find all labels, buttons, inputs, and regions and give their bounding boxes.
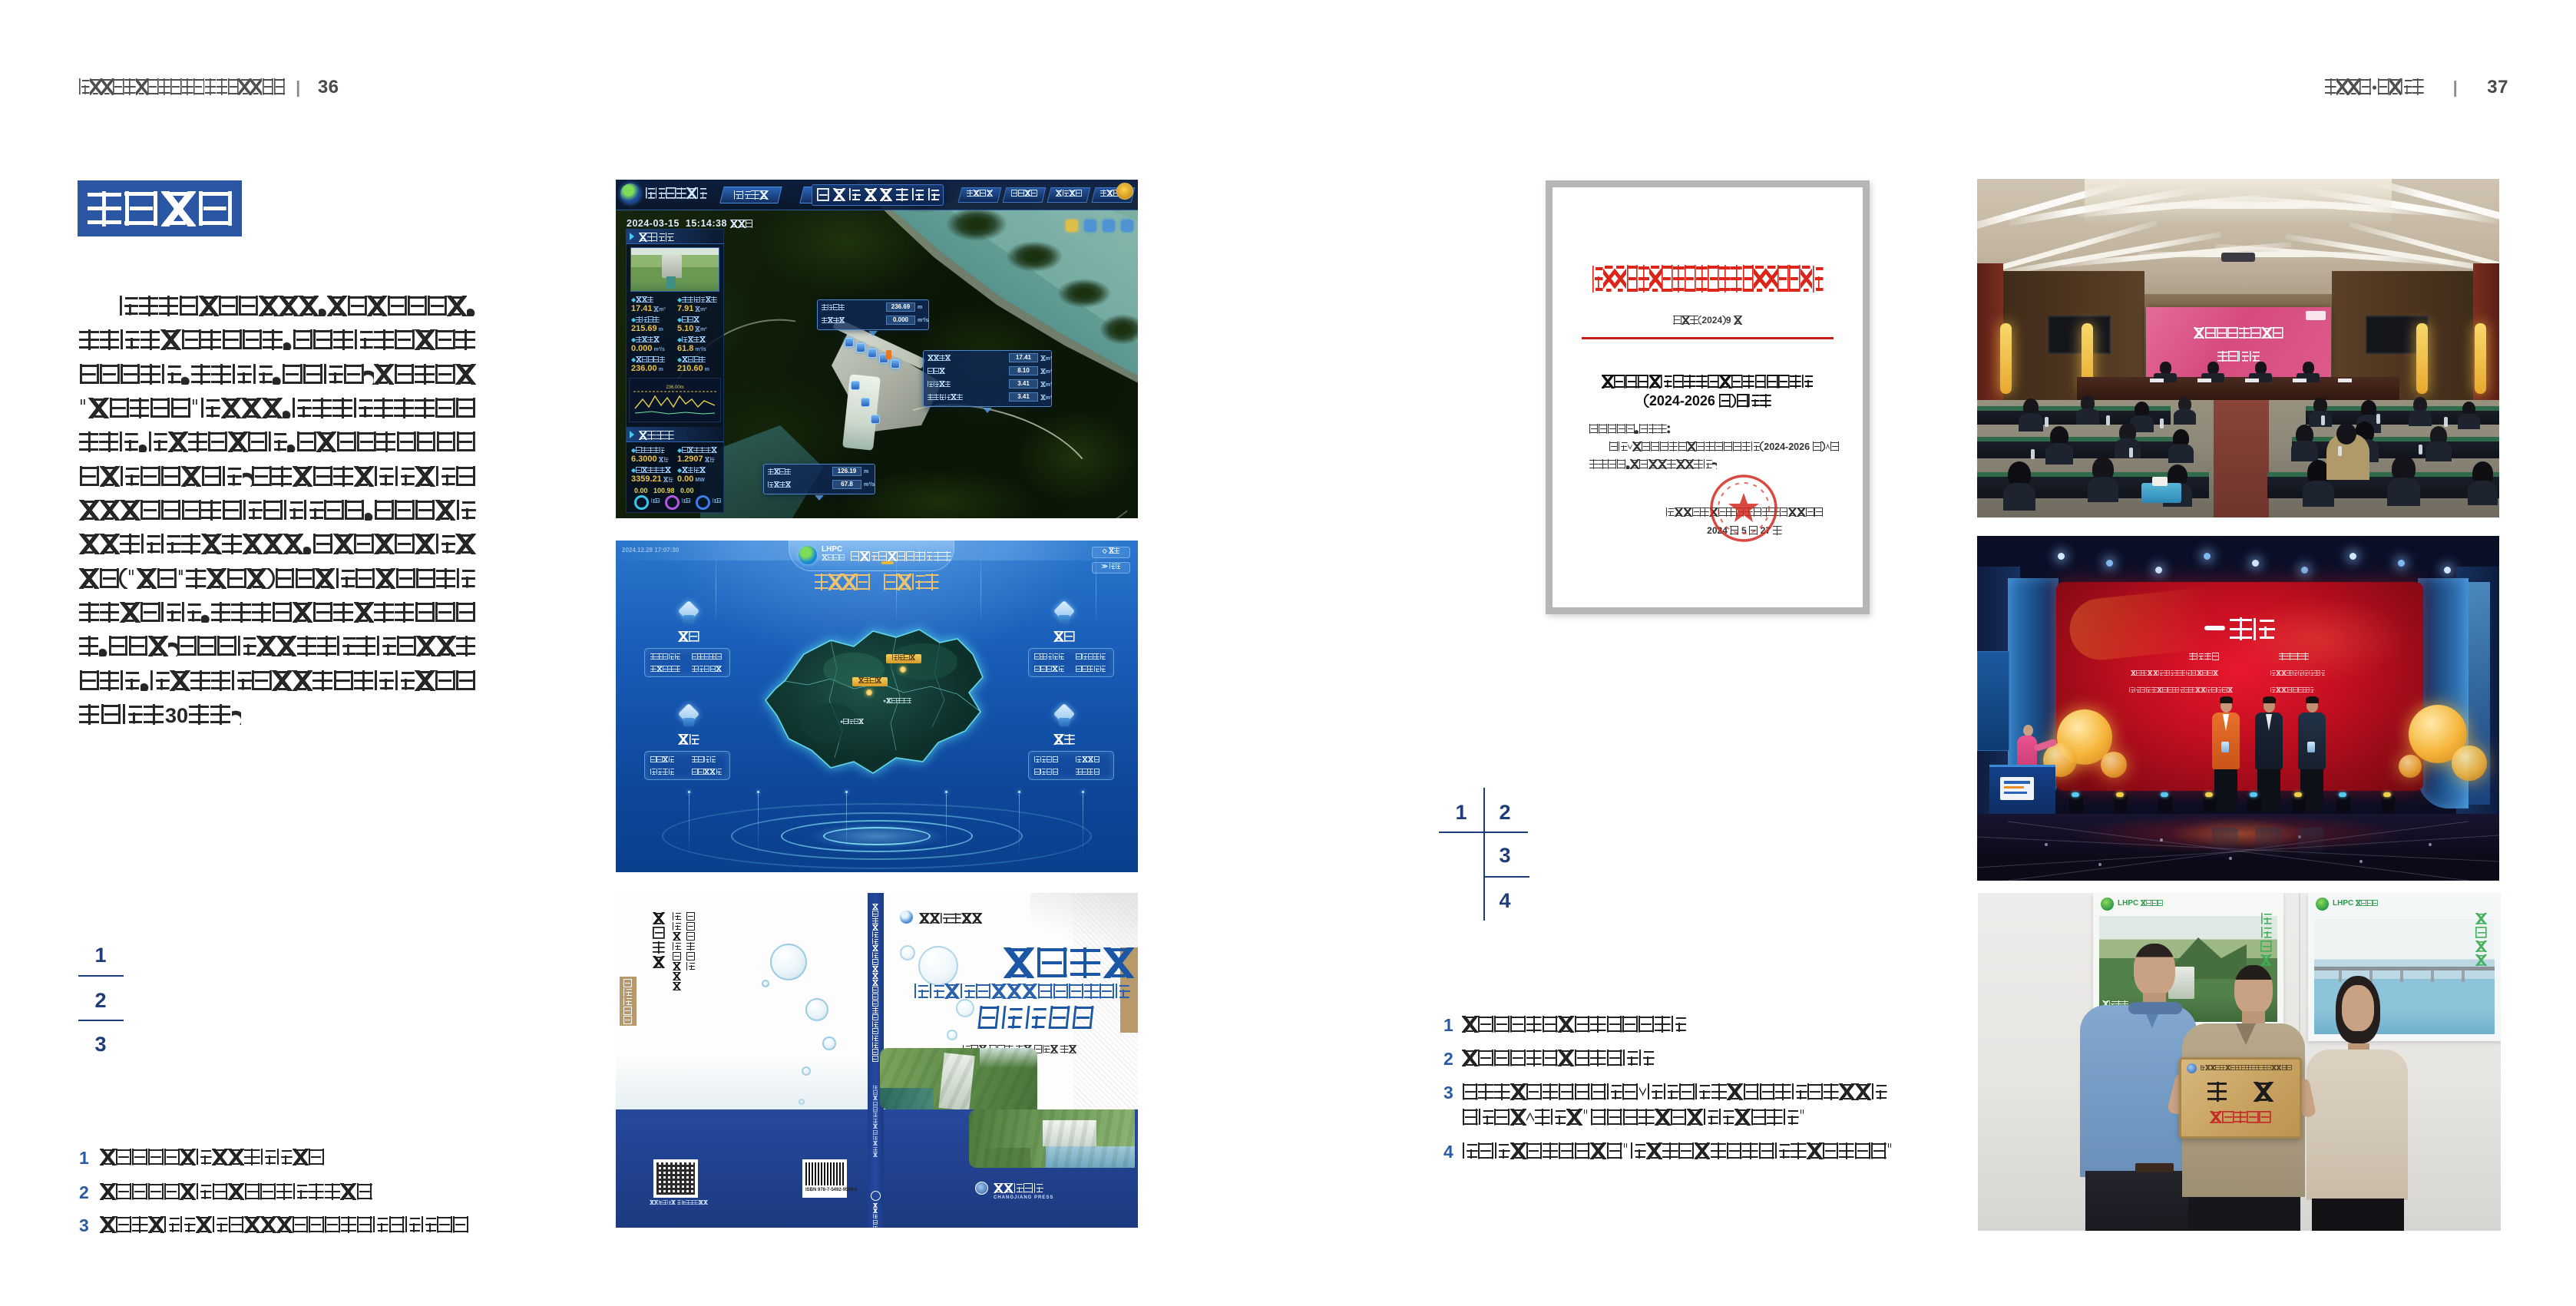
svg-text:236.00m: 236.00m <box>666 385 683 390</box>
